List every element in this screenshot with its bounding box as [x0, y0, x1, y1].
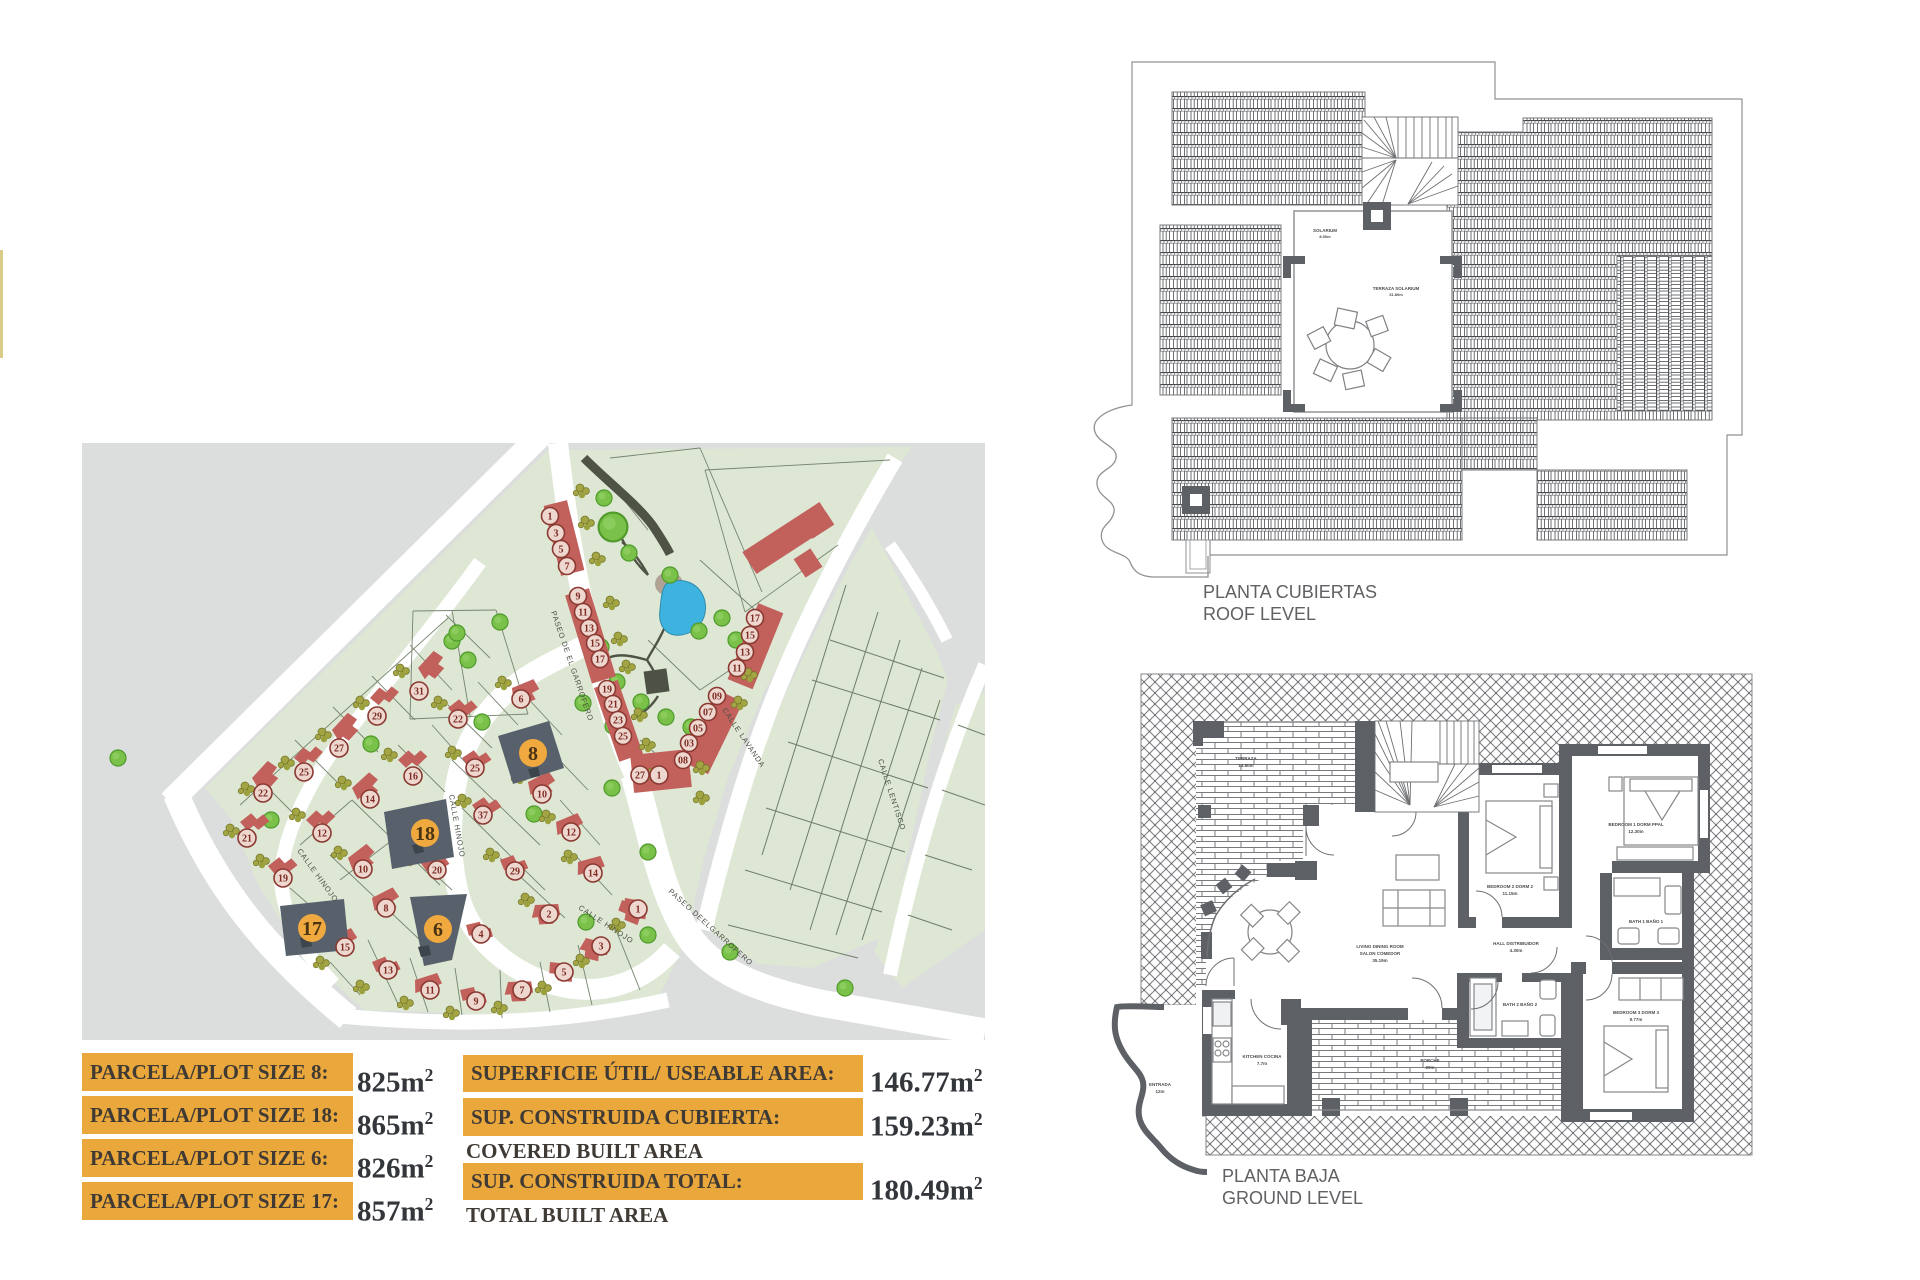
- svg-text:LIVING DINING ROOM: LIVING DINING ROOM: [1356, 944, 1404, 949]
- svg-text:3: 3: [554, 529, 559, 540]
- svg-text:05: 05: [693, 724, 703, 735]
- svg-text:BATH 1 BAÑO 1: BATH 1 BAÑO 1: [1629, 918, 1664, 924]
- svg-text:19: 19: [602, 685, 612, 696]
- svg-text:19: 19: [278, 874, 288, 885]
- svg-text:15: 15: [590, 639, 600, 650]
- svg-text:16: 16: [408, 772, 418, 783]
- svg-text:4.30m: 4.30m: [1510, 948, 1523, 953]
- svg-text:GROUND LEVEL: GROUND LEVEL: [1222, 1188, 1363, 1208]
- svg-text:17: 17: [595, 655, 605, 666]
- svg-text:11: 11: [732, 664, 741, 675]
- svg-text:13: 13: [584, 624, 594, 635]
- svg-text:5: 5: [562, 968, 567, 979]
- svg-text:31.80m: 31.80m: [1389, 292, 1403, 297]
- svg-text:21: 21: [242, 834, 252, 845]
- svg-text:SOLARIUM: SOLARIUM: [1313, 228, 1337, 233]
- svg-text:12: 12: [317, 829, 327, 840]
- svg-text:29: 29: [510, 867, 520, 878]
- svg-text:22: 22: [258, 789, 268, 800]
- svg-text:03: 03: [684, 739, 694, 750]
- svg-text:1: 1: [636, 905, 641, 916]
- svg-text:22: 22: [453, 715, 463, 726]
- svg-text:23: 23: [613, 716, 623, 727]
- svg-text:9.77m: 9.77m: [1630, 1017, 1643, 1022]
- svg-text:8: 8: [528, 743, 538, 765]
- svg-text:5: 5: [559, 545, 564, 556]
- svg-text:08: 08: [678, 756, 688, 767]
- svg-text:14: 14: [588, 869, 598, 880]
- svg-text:10: 10: [537, 790, 547, 801]
- svg-text:TERRAZA SOLARIUM: TERRAZA SOLARIUM: [1373, 286, 1420, 291]
- svg-text:37: 37: [478, 811, 488, 822]
- svg-text:HALL DISTRIBUIDOR: HALL DISTRIBUIDOR: [1493, 941, 1539, 946]
- svg-text:6: 6: [433, 919, 443, 941]
- svg-text:7: 7: [565, 562, 570, 573]
- svg-text:07: 07: [703, 708, 713, 719]
- svg-text:PLANTA CUBIERTAS: PLANTA CUBIERTAS: [1203, 582, 1377, 602]
- svg-text:4: 4: [479, 930, 484, 941]
- svg-text:11: 11: [578, 608, 587, 619]
- svg-text:3: 3: [599, 942, 604, 953]
- svg-text:15: 15: [745, 631, 755, 642]
- svg-text:31: 31: [414, 687, 424, 698]
- svg-text:8.50m: 8.50m: [1319, 234, 1331, 239]
- svg-text:BEDROOM 2 DORM 2: BEDROOM 2 DORM 2: [1487, 884, 1534, 889]
- svg-text:29: 29: [372, 712, 382, 723]
- svg-text:BEDROOM 3 DORM 3: BEDROOM 3 DORM 3: [1613, 1010, 1660, 1015]
- svg-text:13: 13: [740, 648, 750, 659]
- svg-text:1: 1: [548, 512, 553, 523]
- svg-text:21: 21: [608, 700, 618, 711]
- svg-text:PORCHE: PORCHE: [1420, 1058, 1439, 1063]
- svg-text:8: 8: [384, 904, 389, 915]
- svg-text:11: 11: [425, 986, 434, 997]
- svg-text:12m: 12m: [1155, 1089, 1164, 1094]
- svg-text:20: 20: [432, 866, 442, 877]
- svg-text:25: 25: [299, 768, 309, 779]
- svg-text:12: 12: [566, 828, 576, 839]
- svg-text:9: 9: [474, 997, 479, 1008]
- svg-text:7: 7: [520, 986, 525, 997]
- svg-text:ROOF LEVEL: ROOF LEVEL: [1203, 604, 1316, 624]
- svg-text:20m: 20m: [1425, 1065, 1434, 1070]
- svg-text:KITCHEN COCINA: KITCHEN COCINA: [1243, 1054, 1283, 1059]
- svg-text:25: 25: [470, 764, 480, 775]
- svg-text:SALON COMEDOR: SALON COMEDOR: [1360, 951, 1401, 956]
- svg-text:7.7m: 7.7m: [1257, 1061, 1267, 1066]
- svg-text:25: 25: [618, 732, 628, 743]
- svg-text:9: 9: [576, 592, 581, 603]
- svg-text:15: 15: [340, 943, 350, 954]
- svg-text:10: 10: [358, 865, 368, 876]
- svg-text:TERRAZA: TERRAZA: [1235, 756, 1257, 761]
- svg-text:12.30m: 12.30m: [1628, 829, 1643, 834]
- svg-text:PLANTA BAJA: PLANTA BAJA: [1222, 1166, 1340, 1186]
- svg-text:35.19m: 35.19m: [1372, 958, 1387, 963]
- svg-text:11.15m: 11.15m: [1502, 891, 1517, 896]
- svg-text:09: 09: [712, 692, 722, 703]
- svg-text:1: 1: [657, 771, 662, 782]
- svg-text:18: 18: [415, 823, 435, 845]
- svg-text:14.60m: 14.60m: [1238, 763, 1253, 768]
- svg-text:17: 17: [750, 614, 760, 625]
- svg-text:6: 6: [519, 695, 524, 706]
- svg-text:BATH 2 BAÑO 2: BATH 2 BAÑO 2: [1503, 1001, 1538, 1007]
- svg-text:27: 27: [334, 744, 344, 755]
- svg-text:13: 13: [383, 966, 393, 977]
- svg-text:ENTRADA: ENTRADA: [1149, 1082, 1172, 1087]
- svg-text:27: 27: [635, 771, 645, 782]
- svg-text:17: 17: [302, 918, 322, 940]
- svg-text:2: 2: [547, 910, 552, 921]
- svg-text:BEDROOM 1 DORM PPAL: BEDROOM 1 DORM PPAL: [1608, 822, 1663, 827]
- svg-text:14: 14: [365, 795, 375, 806]
